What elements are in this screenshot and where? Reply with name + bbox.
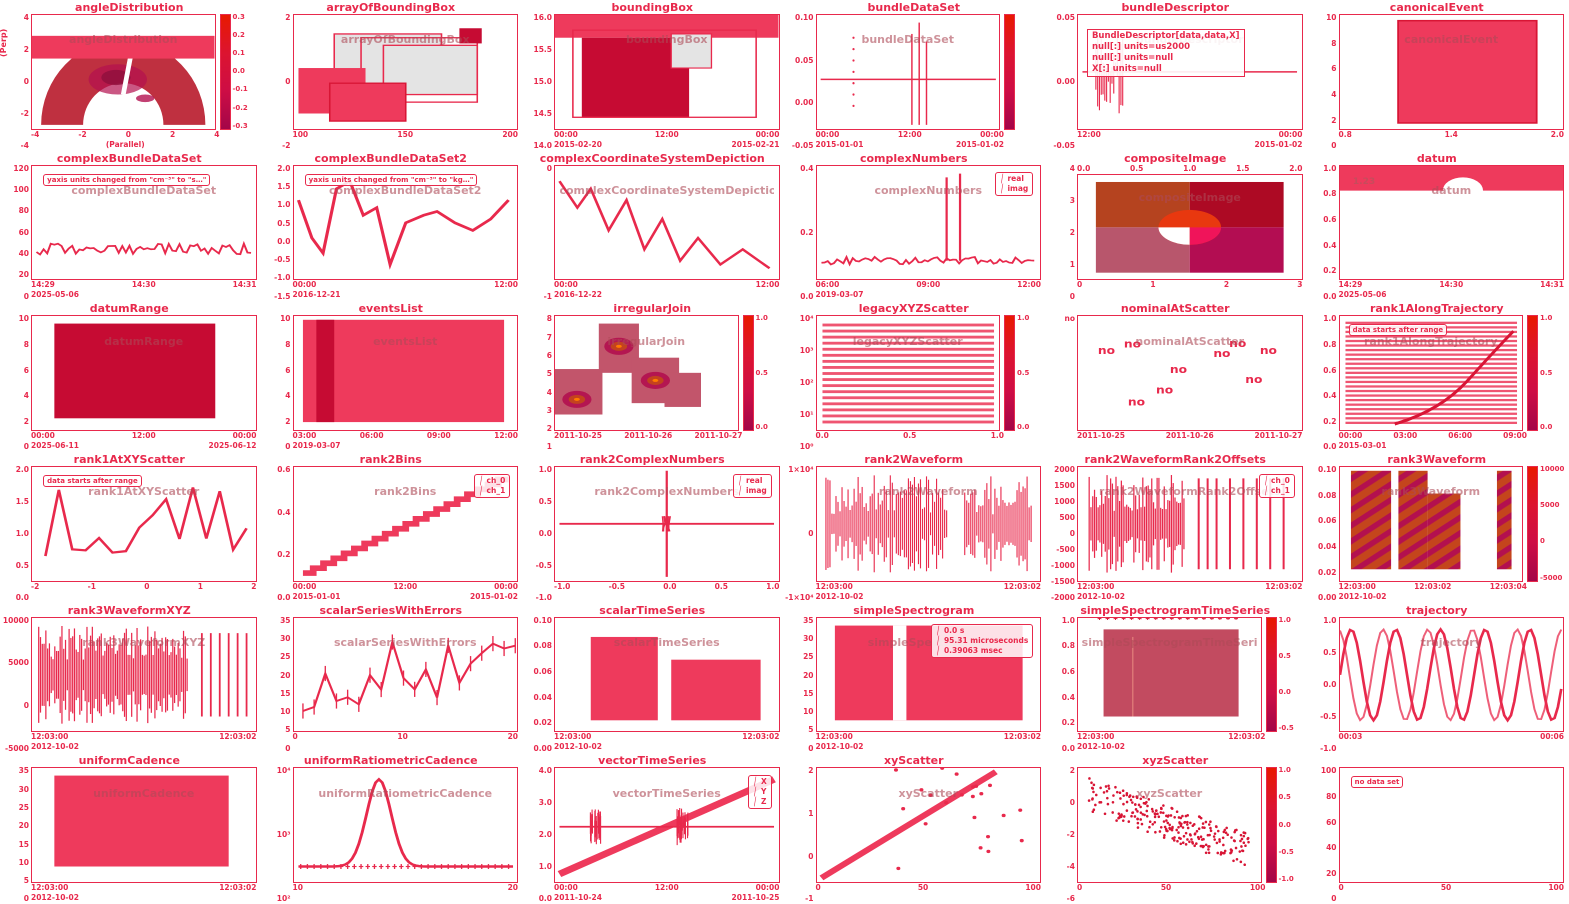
plot-area: xyScatter — [816, 767, 1042, 883]
plot-area: canonicalEvent — [1339, 14, 1565, 130]
x-axis-dates — [293, 893, 519, 903]
x-axis-dates: (Parallel) — [31, 140, 220, 150]
x-axis-ticks: 14:2914:3014:31 — [31, 280, 257, 290]
x-axis-ticks: 2011-10-252011-10-262011-10-27 — [1077, 431, 1303, 441]
panel-datumRange: datumRange1086420datumRange00:0012:0000:… — [0, 301, 262, 452]
panel-title — [1310, 754, 1565, 767]
plot-area: compositeImage — [1077, 174, 1303, 281]
x-axis-ticks: 0.81.42.0 — [1339, 130, 1565, 140]
legend: ╱real╱imag — [733, 474, 771, 498]
legend: ╱ch_0╱ch_1 — [1259, 474, 1295, 498]
plot-area: rank3Waveform — [1339, 466, 1524, 582]
panel-xyzScatter: xyzScatter20-2-4-6xyzScatter1.00.50.0-0.… — [1046, 753, 1308, 904]
legend: ╱real╱imag — [995, 172, 1033, 196]
x-axis-ticks: 00:0012:0000:00 — [554, 883, 780, 893]
panel-no-data: 100806040200no data set050100 — [1308, 753, 1569, 904]
x-axis-dates — [554, 592, 780, 602]
colorbar — [1004, 315, 1015, 431]
x-axis-ticks: 100150200 — [293, 130, 519, 140]
x-axis-ticks: 01020 — [293, 732, 519, 742]
y-axis-ticks: 1.00.80.60.40.20.0 — [1048, 617, 1077, 753]
x-axis-ticks: 1020 — [293, 883, 519, 893]
x-axis-ticks: 050100 — [1077, 883, 1266, 893]
panel-bundleDescriptor: bundleDescriptor0.050.00-0.05bundleDescr… — [1046, 0, 1308, 151]
y-axis-ticks: 2.01.51.00.50.0 — [2, 466, 31, 602]
x-axis-ticks: 12:03:0012:03:02 — [31, 883, 257, 893]
colorbar-ticks: 1.00.50.0-0.5 — [1277, 617, 1303, 733]
plot-area: rank1AlongTrajectorydata starts after ra… — [1339, 315, 1524, 431]
panel-title: vectorTimeSeries — [525, 754, 780, 767]
legend: ╱ch_0╱ch_1 — [474, 474, 510, 498]
x-axis-dates: 2019-03-07 — [293, 441, 519, 451]
panel-title: bundleDataSet — [787, 1, 1042, 14]
x-axis-dates — [293, 742, 519, 752]
svg-text:no: no — [1213, 347, 1230, 360]
y-axis-ticks: 0-1 — [525, 165, 554, 301]
plot-area: rank2ComplexNumbers╱real╱imag — [554, 466, 780, 582]
panel-vectorTimeSeries: vectorTimeSeries4.03.02.01.00.0vectorTim… — [523, 753, 785, 904]
panel-rank2ComplexNumbers: rank2ComplexNumbers1.00.50.0-0.5-1.0rank… — [523, 452, 785, 603]
plot-area: rank2WaveformRank2Offsets╱ch_0╱ch_1 — [1077, 466, 1303, 582]
colorbar-ticks: 0.30.20.10.0-0.1-0.2-0.3 — [231, 14, 257, 130]
y-axis-ticks: 0.60.40.20.0 — [264, 466, 293, 602]
panel-title: bundleDescriptor — [1048, 1, 1303, 14]
panel-title: angleDistribution — [2, 1, 257, 14]
x-axis-dates: 2025-05-06 — [1339, 290, 1565, 300]
x-axis-ticks: 00:0300:06 — [1339, 732, 1565, 742]
x-axis-ticks: 14:2914:3014:31 — [1339, 280, 1565, 290]
x-axis-dates: 2019-03-07 — [816, 290, 1042, 300]
y-axis-ticks: no — [1048, 315, 1077, 451]
panel-title: scalarSeriesWithErrors — [264, 604, 519, 617]
x-axis-dates: 2012-10-02 — [1077, 742, 1266, 752]
svg-text:no: no — [1229, 337, 1246, 350]
panel-title: eventsList — [264, 302, 519, 315]
x-axis-ticks: 00:0012:0000:00 — [816, 130, 1005, 140]
panel-rank1AlongTrajectory: rank1AlongTrajectory1.00.80.60.40.20.0ra… — [1308, 301, 1569, 452]
colorbar — [220, 14, 231, 130]
y-axis-ticks: 120100806040200 — [2, 165, 31, 301]
marker-row: ✱✱✱✱✱✱✱✱✱✱✱✱✱✱✱✱✱✱ — [1078, 617, 1261, 622]
panel-title: simpleSpectrogramTimeSeries — [1048, 604, 1303, 617]
panel-complexCoordinateSystemDepiction: complexCoordinateSystemDepiction0-1compl… — [523, 151, 785, 302]
panel-title: boundingBox — [525, 1, 780, 14]
x-axis-ticks: 0123 — [1077, 280, 1303, 290]
colorbar — [1266, 767, 1277, 883]
panel-title: rank3Waveform — [1310, 453, 1565, 466]
x-axis-dates: 2015-01-02 — [1077, 140, 1303, 150]
panel-canonicalEvent: canonicalEvent1086420canonicalEvent0.81.… — [1308, 0, 1569, 151]
plot-area: nonononononononononominalAtScatter — [1077, 315, 1303, 431]
panel-irregularJoin: irregularJoin87654321irregularJoin1.00.5… — [523, 301, 785, 452]
svg-text:no: no — [1260, 344, 1277, 357]
panel-title: rank2WaveformRank2Offsets — [1048, 453, 1303, 466]
plot-area: trajectory — [1339, 617, 1565, 733]
plot-gallery: angleDistribution(Perp)420-2-4angleDistr… — [0, 0, 1569, 904]
y-axis-ticks: 35302520151050 — [264, 617, 293, 753]
x-axis-ticks: 050100 — [816, 883, 1042, 893]
plot-area: uniformCadence — [31, 767, 257, 883]
panel-title: scalarTimeSeries — [525, 604, 780, 617]
panel-title: xyzScatter — [1048, 754, 1303, 767]
x-axis-ticks: 12:03:0012:03:02 — [1077, 732, 1266, 742]
x-axis-dates: 2015-03-01 — [1339, 441, 1528, 451]
x-axis-dates — [1339, 893, 1565, 903]
colorbar-ticks: 1000050000-5000 — [1538, 466, 1564, 582]
panel-title: rank2Waveform — [787, 453, 1042, 466]
colorbar — [1266, 617, 1277, 733]
y-axis-ticks: 0.050.00-0.05 — [1048, 14, 1077, 150]
panel-title: trajectory — [1310, 604, 1565, 617]
x-axis-dates: 2015-01-012015-01-02 — [293, 592, 519, 602]
annotation-box: data starts after range — [43, 475, 142, 487]
plot-area: simpleSpectrogramTimeSeries✱✱✱✱✱✱✱✱✱✱✱✱✱… — [1077, 617, 1262, 733]
panel-rank3WaveformXYZ: rank3WaveformXYZ1000050000-5000rank3Wave… — [0, 603, 262, 754]
svg-text:no: no — [1124, 338, 1141, 351]
annotation-box: data starts after range — [1349, 324, 1448, 336]
y-axis-ticks: 0.40.20.0 — [787, 165, 816, 301]
plot-area: rank3WaveformXYZ — [31, 617, 257, 733]
x-axis-ticks: 050100 — [1339, 883, 1565, 893]
x-axis-ticks: 03:0006:0009:0012:00 — [293, 431, 519, 441]
svg-text:no: no — [1098, 345, 1115, 358]
x-axis-ticks: 00:0012:00 — [293, 280, 519, 290]
x-axis-ticks: 12:03:0012:03:02 — [31, 732, 257, 742]
x-axis-dates: 2012-10-02 — [816, 592, 1042, 602]
plot-area: bundleDataSet — [816, 14, 1001, 130]
panel-title: datumRange — [2, 302, 257, 315]
colorbar-ticks — [1015, 14, 1041, 130]
colorbar — [1004, 14, 1015, 130]
panel-title: rank3WaveformXYZ — [2, 604, 257, 617]
x-axis-ticks: 2011-10-252011-10-262011-10-27 — [554, 431, 743, 441]
x-axis-dates: 2012-10-02 — [816, 742, 1042, 752]
svg-text:no: no — [1156, 384, 1173, 397]
panel-title: rank1AtXYScatter — [2, 453, 257, 466]
colorbar-ticks: 1.00.50.0 — [1015, 315, 1041, 431]
x-axis-dates: 2012-10-02 — [1339, 592, 1528, 602]
panel-legacyXYZScatter: legacyXYZScatter10⁴10³10²10¹10⁰legacyXYZ… — [785, 301, 1047, 452]
panel-title: canonicalEvent — [1310, 1, 1565, 14]
x-axis-dates: 2015-01-012015-01-02 — [816, 140, 1005, 150]
panel-title: xyScatter — [787, 754, 1042, 767]
x-axis-dates — [1339, 742, 1565, 752]
colorbar-ticks: 1.00.50.0 — [1538, 315, 1564, 431]
x-axis-dates: 2025-06-112025-06-12 — [31, 441, 257, 451]
x-axis-ticks: 12:03:0012:03:02 — [1077, 582, 1303, 592]
panel-title: complexBundleDataSet — [2, 152, 257, 165]
plot-area: no data set — [1339, 767, 1565, 883]
x-axis-ticks: -4-2024 — [31, 130, 220, 140]
plot-area: angleDistribution — [31, 14, 216, 130]
panel-compositeImage: compositeImage432100.00.51.01.52.0compos… — [1046, 151, 1308, 302]
x-axis-ticks: 12:03:0012:03:02 — [816, 732, 1042, 742]
plot-area: complexBundleDataSet2yaxis units changed… — [293, 165, 519, 281]
panel-xyScatter: xyScatter210-1xyScatter050100 — [785, 753, 1047, 904]
plot-area: datumRange — [31, 315, 257, 431]
x-axis-ticks: 12:03:0012:03:02 — [816, 582, 1042, 592]
y-axis-ticks: 1086420 — [264, 315, 293, 451]
y-axis-ticks: 0.100.050.00-0.05 — [787, 14, 816, 150]
plot-area: complexCoordinateSystemDepiction — [554, 165, 780, 281]
x-axis-dates: 2016-12-22 — [554, 290, 780, 300]
x-axis-ticks-top: 0.00.51.01.52.0 — [1077, 165, 1303, 174]
y-axis-ticks: 210-1 — [787, 767, 816, 903]
x-axis-ticks: 00:0012:00 — [554, 280, 780, 290]
x-axis-ticks: 12:03:0012:03:0212:03:04 — [1339, 582, 1528, 592]
panel-title: complexNumbers — [787, 152, 1042, 165]
panel-simpleSpectrogramTimeSeries: simpleSpectrogramTimeSeries1.00.80.60.40… — [1046, 603, 1308, 754]
y-axis-ticks: 16.015.515.014.514.0 — [525, 14, 554, 150]
panel-eventsList: eventsList1086420eventsList03:0006:0009:… — [262, 301, 524, 452]
panel-simpleSpectrogram: simpleSpectrogram35302520151050simpleSpe… — [785, 603, 1047, 754]
x-axis-dates: 2012-10-02 — [31, 742, 257, 752]
panel-rank2Bins: rank2Bins0.60.40.20.0rank2Bins╱ch_0╱ch_1… — [262, 452, 524, 603]
panel-rank1AtXYScatter: rank1AtXYScatter2.01.51.00.50.0rank1AtXY… — [0, 452, 262, 603]
x-axis-ticks: -2-1012 — [31, 582, 257, 592]
y-axis-ticks: 1086420 — [2, 315, 31, 451]
x-axis-dates: 2012-10-02 — [554, 742, 780, 752]
plot-area: boundingBox — [554, 14, 780, 130]
y-axis-ticks: 43210 — [1048, 165, 1077, 301]
panel-title: uniformRatiometricCadence — [264, 754, 519, 767]
panel-complexBundleDataSet2: complexBundleDataSet22.01.51.00.50.0-0.5… — [262, 151, 524, 302]
plot-area: datum1.23 — [1339, 165, 1565, 281]
colorbar — [743, 315, 754, 431]
panel-uniformRatiometricCadence: uniformRatiometricCadence10⁴10³10²unifor… — [262, 753, 524, 904]
plot-area: complexNumbers╱real╱imag — [816, 165, 1042, 281]
descriptor-text: BundleDescriptor[data,data,X]null[:] uni… — [1087, 29, 1245, 77]
panel-title: legacyXYZScatter — [787, 302, 1042, 315]
y-axis-ticks: 1.00.80.60.40.20.0 — [1310, 165, 1339, 301]
panel-arrayOfBoundingBox: arrayOfBoundingBox20-2arrayOfBoundingBox… — [262, 0, 524, 151]
x-axis-dates — [293, 140, 519, 150]
panel-rank2Waveform: rank2Waveform1×10⁴0-1×10⁴rank2Waveform12… — [785, 452, 1047, 603]
annotation-box: no data set — [1351, 776, 1404, 788]
panel-scalarSeriesWithErrors: scalarSeriesWithErrors35302520151050scal… — [262, 603, 524, 754]
panel-angleDistribution: angleDistribution(Perp)420-2-4angleDistr… — [0, 0, 262, 151]
x-axis-dates: 2012-10-02 — [31, 893, 257, 903]
x-axis-ticks: 00:0003:0006:0009:00 — [1339, 431, 1528, 441]
y-axis-ticks: 0.100.080.060.040.020.00 — [525, 617, 554, 753]
legend: ╱0.0 s╱95.31 microseconds╱0.39063 msec — [931, 624, 1033, 658]
plot-area: arrayOfBoundingBox — [293, 14, 519, 130]
x-axis-dates — [554, 441, 743, 451]
plot-area: rank1AtXYScatterdata starts after range — [31, 466, 257, 582]
x-axis-dates — [31, 592, 257, 602]
y-axis-ticks: 2.01.51.00.50.0-0.5-1.0-1.5 — [264, 165, 293, 301]
x-axis-dates: 2011-10-242011-10-25 — [554, 893, 780, 903]
panel-rank2WaveformRank2Offsets: rank2WaveformRank2Offsets200015001000500… — [1046, 452, 1308, 603]
plot-area: eventsList — [293, 315, 519, 431]
panel-rank3Waveform: rank3Waveform0.100.080.060.040.020.00ran… — [1308, 452, 1569, 603]
panel-title: arrayOfBoundingBox — [264, 1, 519, 14]
panel-title: irregularJoin — [525, 302, 780, 315]
plot-area: uniformRatiometricCadence — [293, 767, 519, 883]
x-axis-ticks: 06:0009:0012:00 — [816, 280, 1042, 290]
x-axis-dates: 2015-02-202015-02-21 — [554, 140, 780, 150]
y-axis-ticks: 1.00.50.0-0.5-1.0 — [525, 466, 554, 602]
y-axis-ticks: 35302520151050 — [787, 617, 816, 753]
panel-title: datum — [1310, 152, 1565, 165]
plot-area: bundleDescriptorBundleDescriptor[data,da… — [1077, 14, 1303, 130]
colorbar-ticks: 1.00.50.0-0.5-1.0 — [1277, 767, 1303, 883]
plot-area: rank2Bins╱ch_0╱ch_1 — [293, 466, 519, 582]
x-axis-dates — [1339, 140, 1565, 150]
panel-scalarTimeSeries: scalarTimeSeries0.100.080.060.040.020.00… — [523, 603, 785, 754]
colorbar — [1527, 315, 1538, 431]
x-axis-ticks: 00:0012:0000:00 — [293, 582, 519, 592]
panel-title: complexCoordinateSystemDepiction — [525, 152, 780, 165]
y-axis-ticks: 87654321 — [525, 315, 554, 451]
annotation-box: yaxis units changed from "cm⁻³" to "s…" — [43, 174, 210, 186]
y-axis-ticks: 1.00.50.0-0.5-1.0 — [1310, 617, 1339, 753]
panel-complexBundleDataSet: complexBundleDataSet120100806040200compl… — [0, 151, 262, 302]
legend: ╱X╱Y╱Z — [748, 775, 771, 809]
x-axis-ticks: 00:0012:0000:00 — [31, 431, 257, 441]
plot-area: scalarTimeSeries — [554, 617, 780, 733]
panel-uniformCadence: uniformCadence35302520151050uniformCaden… — [0, 753, 262, 904]
annotation-box: yaxis units changed from "cm⁻³" to "kg…" — [305, 174, 478, 186]
panel-title: rank2Bins — [264, 453, 519, 466]
x-axis-dates — [1077, 441, 1303, 451]
panel-nominalAtScatter: nominalAtScatternononononononononononomi… — [1046, 301, 1308, 452]
y-axis-ticks: 10⁴10³10²10¹10⁰ — [787, 315, 816, 451]
y-axis-ticks: 1000050000-5000 — [2, 617, 31, 753]
svg-text:no: no — [1245, 373, 1262, 386]
y-axis-label: (Perp) — [0, 29, 8, 57]
x-axis-dates: 2012-10-02 — [1077, 592, 1303, 602]
plot-area: simpleSpectrogram╱0.0 s╱95.31 microsecon… — [816, 617, 1042, 733]
x-axis-ticks: -1.0-0.50.00.51.0 — [554, 582, 780, 592]
x-axis-dates — [1077, 893, 1266, 903]
panel-title: compositeImage — [1048, 152, 1303, 165]
y-axis-ticks: 1×10⁴0-1×10⁴ — [787, 466, 816, 602]
panel-complexNumbers: complexNumbers0.40.20.0complexNumbers╱re… — [785, 151, 1047, 302]
colorbar-ticks: 1.00.50.0 — [754, 315, 780, 431]
x-axis-ticks: 00:0012:0000:00 — [554, 130, 780, 140]
y-axis-ticks: 4.03.02.01.00.0 — [525, 767, 554, 903]
colorbar — [1527, 466, 1538, 582]
x-axis-dates — [816, 893, 1042, 903]
y-axis-ticks: 35302520151050 — [2, 767, 31, 903]
plot-area: legacyXYZScatter — [816, 315, 1001, 431]
y-axis-ticks: 1086420 — [1310, 14, 1339, 150]
panel-trajectory: trajectory1.00.50.0-0.5-1.0trajectory00:… — [1308, 603, 1569, 754]
plot-area: irregularJoin — [554, 315, 739, 431]
value-label: 1.23 — [1353, 177, 1375, 187]
panel-title: rank2ComplexNumbers — [525, 453, 780, 466]
y-axis-ticks: 2000150010005000-500-1000-1500-2000 — [1048, 466, 1077, 602]
panel-title: nominalAtScatter — [1048, 302, 1303, 315]
y-axis-ticks: 20-2-4-6 — [1048, 767, 1077, 903]
panel-title: rank1AlongTrajectory — [1310, 302, 1565, 315]
y-axis-ticks: 20-2 — [264, 14, 293, 150]
panel-title: complexBundleDataSet2 — [264, 152, 519, 165]
x-axis-ticks: 0.00.51.0 — [816, 431, 1005, 441]
panel-datum: datum1.00.80.60.40.20.0datum1.2314:2914:… — [1308, 151, 1569, 302]
x-axis-dates: 2025-05-06 — [31, 290, 257, 300]
plot-area: rank2Waveform — [816, 466, 1042, 582]
svg-text:no: no — [1170, 364, 1187, 377]
y-axis-ticks: 0.100.080.060.040.020.00 — [1310, 466, 1339, 602]
panel-bundleDataSet: bundleDataSet0.100.050.00-0.05bundleData… — [785, 0, 1047, 151]
plot-area: complexBundleDataSetyaxis units changed … — [31, 165, 257, 281]
x-axis-dates — [816, 441, 1005, 451]
y-axis-ticks: 1.00.80.60.40.20.0 — [1310, 315, 1339, 451]
panel-boundingBox: boundingBox16.015.515.014.514.0boundingB… — [523, 0, 785, 151]
plot-area: vectorTimeSeries╱X╱Y╱Z — [554, 767, 780, 883]
panel-title: simpleSpectrogram — [787, 604, 1042, 617]
plot-area: scalarSeriesWithErrors — [293, 617, 519, 733]
svg-text:no: no — [1128, 396, 1145, 409]
panel-title: uniformCadence — [2, 754, 257, 767]
plot-area: xyzScatter — [1077, 767, 1262, 883]
y-axis-ticks: 10⁴10³10² — [264, 767, 293, 903]
x-axis-dates: 2016-12-21 — [293, 290, 519, 300]
x-axis-dates — [1077, 290, 1303, 300]
x-axis-ticks: 12:0000:00 — [1077, 130, 1303, 140]
x-axis-ticks: 12:03:0012:03:02 — [554, 732, 780, 742]
y-axis-ticks: 100806040200 — [1310, 767, 1339, 903]
